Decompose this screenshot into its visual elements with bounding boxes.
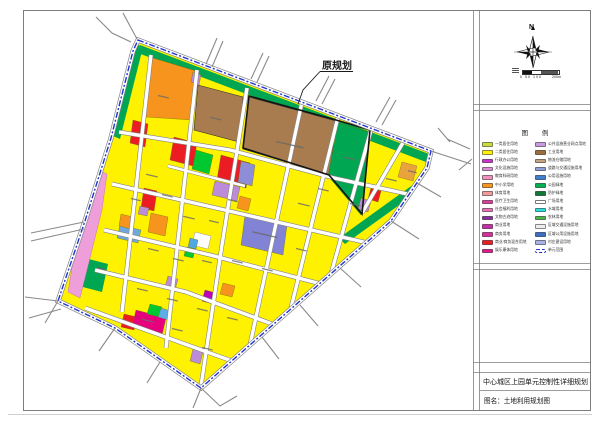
legend-item: 公用设施用地 [535, 175, 588, 180]
scale-end-label: 200m [552, 75, 561, 79]
north-arrow-icon [514, 25, 552, 68]
scale-seg [532, 71, 541, 74]
legend-item: 医疗卫生用地 [482, 199, 535, 204]
legend-item: 二类居住用地 [482, 150, 535, 155]
legend-swatch [535, 232, 546, 237]
legend-swatch [535, 183, 546, 188]
map-name: 图名：土地利用规划图 [481, 392, 590, 408]
north-label: N [529, 24, 535, 31]
legend-swatch [535, 216, 546, 221]
legend-item: 公共设施营业网点用地 [535, 142, 588, 147]
legend-item: 一类居住用地 [482, 142, 535, 147]
legend-item: 文物古迹用地 [482, 216, 535, 221]
legend-swatch [482, 232, 493, 237]
legend-swatch [482, 249, 493, 254]
legend-item: 教育科研用地 [482, 175, 535, 180]
legend-item-label: 商务用地 [495, 233, 510, 237]
legend-item-label: 防护绿地 [548, 192, 563, 196]
legend-item-label: 行政办公用地 [495, 159, 518, 163]
legend-column-left: 一类居住用地 二类居住用地 行政办公用地 文化设施用地 [482, 142, 535, 253]
legend-swatch [482, 240, 493, 245]
legend-swatch [535, 240, 546, 245]
legend-swatch [535, 191, 546, 196]
legend-item-label: 广场用地 [548, 200, 563, 204]
legend-item: 社会福利用地 [482, 208, 535, 213]
legend-swatch [535, 200, 546, 205]
legend-swatch [482, 191, 493, 196]
legend-swatch [535, 224, 546, 229]
scale-seg [541, 71, 558, 74]
legend-item: 水域用地 [535, 208, 588, 213]
legend-item: 农林用地 [535, 216, 588, 221]
legend-item: 中小学用地 [482, 183, 535, 188]
plan-sheet: 原规划 N 0 50 100 200m 图 例 [0, 0, 600, 422]
legend-title: 图 例 [482, 127, 588, 137]
scale-seg [523, 71, 532, 74]
legend-item-label: 工业用地 [548, 151, 563, 155]
legend-item-label: 公园绿地 [548, 184, 563, 188]
legend-item-label: 商业用地 [495, 224, 510, 228]
legend-item-label: 水域用地 [548, 208, 563, 212]
legend-item-label: 村庄建设用地 [548, 241, 571, 245]
legend-item: 娱乐康体用地 [482, 248, 535, 253]
legend-item: 道路与交通设施用地 [535, 167, 588, 172]
legend-item-label: 文物古迹用地 [495, 216, 518, 220]
legend-swatch [535, 249, 546, 254]
legend-item: 村庄建设用地 [535, 240, 588, 245]
legend-swatch [482, 224, 493, 229]
legend-item-label: 教育科研用地 [495, 175, 518, 179]
legend-swatch [482, 183, 493, 188]
legend-swatch [482, 150, 493, 155]
legend-swatch [482, 142, 493, 147]
plan-title: 中心城区上园单元控制性详细规划 [481, 374, 590, 389]
scale-mini-text [512, 68, 519, 73]
legend-item: 防护绿地 [535, 191, 588, 196]
legend-swatch [535, 159, 546, 164]
legend-item: 工业用地 [535, 150, 588, 155]
legend-swatch [482, 167, 493, 172]
legend-item-label: 体育用地 [495, 192, 510, 196]
legend-item: 商业/商务混合用地 [482, 240, 535, 245]
scale-tick-labels: 0 50 100 [520, 75, 542, 79]
legend-swatch [535, 175, 546, 180]
legend-item: 行政办公用地 [482, 158, 535, 163]
legend-swatch [482, 159, 493, 164]
legend-item: 文化设施用地 [482, 167, 535, 172]
legend-swatch [535, 142, 546, 147]
legend-item: 区域公用设施用地 [535, 232, 588, 237]
legend-item-label: 公共设施营业网点用地 [548, 143, 586, 147]
legend-item-label: 农林用地 [548, 216, 563, 220]
legend-swatch [482, 200, 493, 205]
legend-swatch [482, 216, 493, 221]
legend-item-label: 物流仓储用地 [548, 159, 571, 163]
legend-item-label: 商业/商务混合用地 [495, 241, 526, 245]
legend-item-label: 单元范围 [548, 249, 563, 253]
legend-item: 体育用地 [482, 191, 535, 196]
legend-item: 商务用地 [482, 232, 535, 237]
legend-item-label: 中小学用地 [495, 184, 514, 188]
legend-swatch [535, 167, 546, 172]
legend-column-right: 公共设施营业网点用地 工业用地 物流仓储用地 道路与交通设施用地 [535, 142, 588, 253]
legend-item-label: 医疗卫生用地 [495, 200, 518, 204]
legend-item-label: 文化设施用地 [495, 167, 518, 171]
legend-item: 区域交通设施用地 [535, 224, 588, 229]
legend-item-label: 二类居住用地 [495, 151, 518, 155]
legend-swatch [535, 208, 546, 213]
legend-item: 公园绿地 [535, 183, 588, 188]
legend-swatch [482, 208, 493, 213]
annotation-original-plan-text: 原规划 [322, 59, 352, 72]
legend-item: 单元范围 [535, 248, 588, 253]
legend: 图 例 一类居住用地 二类居住用地 行政办公用地 [482, 127, 588, 253]
legend-item-label: 区域交通设施用地 [548, 224, 578, 228]
legend-item-label: 公用设施用地 [548, 175, 571, 179]
legend-item-label: 一类居住用地 [495, 143, 518, 147]
legend-item-label: 社会福利用地 [495, 208, 518, 212]
legend-item-label: 娱乐康体用地 [495, 249, 518, 253]
legend-item-label: 道路与交通设施用地 [548, 167, 582, 171]
legend-item-label: 区域公用设施用地 [548, 233, 578, 237]
legend-item: 物流仓储用地 [535, 158, 588, 163]
legend-item: 广场用地 [535, 199, 588, 204]
legend-swatch [535, 150, 546, 155]
legend-swatch [482, 175, 493, 180]
legend-item: 商业用地 [482, 224, 535, 229]
